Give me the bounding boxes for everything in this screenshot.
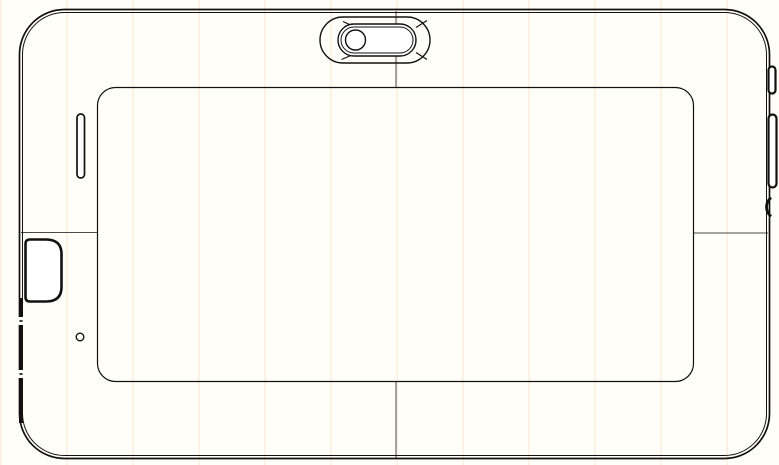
mic-hole [76,333,84,341]
device-outline-outer [20,10,770,459]
tablet-rear-drawing [0,0,779,465]
camera-module [320,17,430,63]
device-body [20,10,770,459]
camera-lens-icon [346,30,366,50]
seam-lines [21,11,768,458]
left-edge-strip-nub-1 [19,320,22,322]
left-edge-strip-nub-2 [19,373,22,375]
speaker-slot [77,114,85,178]
right-edge-controls [767,67,777,217]
battery-panel [98,88,694,382]
volume-rocker [769,115,777,188]
power-button [769,67,776,94]
left-edge-strip [19,298,22,423]
device-outline-inner [23,13,767,456]
card-door [26,240,62,302]
drawing-canvas [0,0,779,465]
